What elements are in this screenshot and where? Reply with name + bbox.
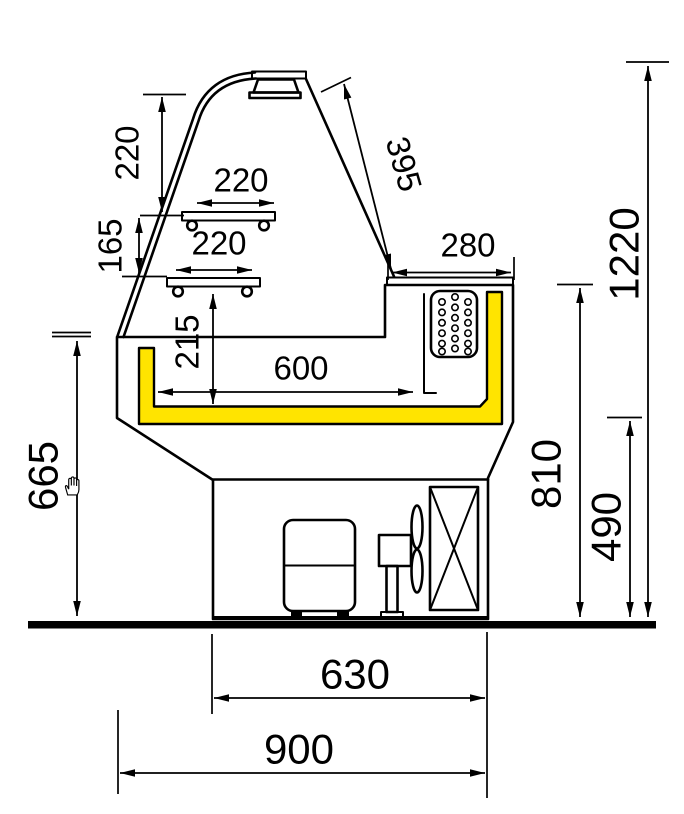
dim-label-810: 810 [523, 439, 570, 509]
dim-label-1220: 1220 [601, 207, 648, 300]
dim-base-height: 490 [583, 418, 643, 618]
dim-well-depth: 215 [169, 294, 214, 404]
dim-label-395: 395 [379, 132, 430, 195]
dim-shelf-lower-width: 220 [176, 225, 252, 271]
condenser-coil [430, 487, 478, 610]
hand-cursor-icon [65, 477, 78, 495]
dim-label-215: 215 [169, 314, 206, 369]
dim-label-900: 900 [264, 726, 334, 773]
shelf-lower [167, 278, 260, 296]
fan-blade [412, 506, 423, 549]
display-counter-cross-section: 220 165 220 220 215 600 280 395 [0, 0, 684, 814]
dim-front-height: 665 [20, 333, 92, 617]
fan-stand-foot [381, 612, 403, 618]
fan-blade [412, 550, 423, 593]
dim-shelf-upper-width: 220 [197, 162, 274, 204]
dim-counter-height: 810 [523, 285, 594, 618]
shelf-bracket [173, 287, 183, 297]
dim-label-630: 630 [320, 651, 390, 698]
compressor-foot [337, 611, 349, 618]
dim-canopy-height: 220 [109, 95, 187, 216]
fan-motor [379, 535, 411, 566]
ventilation-grille [431, 291, 477, 357]
dim-top-shelf-depth: 280 [388, 227, 514, 281]
technical-diagram: 220 165 220 220 215 600 280 395 [0, 0, 684, 814]
dim-label-600: 600 [273, 350, 328, 387]
canopy-panel [252, 72, 306, 79]
compressor-foot [291, 611, 302, 618]
shelf-bracket [242, 287, 252, 297]
ground-line [28, 621, 656, 629]
dim-label-220-upper-shelf: 220 [213, 162, 268, 199]
compressor [284, 520, 355, 618]
lamp-tube [250, 93, 301, 99]
lamp-fixture [250, 80, 301, 99]
fan-stand [387, 566, 398, 612]
front-glass [118, 73, 257, 338]
fan-unit [379, 506, 423, 618]
dim-label-220-lower-shelf: 220 [191, 225, 246, 262]
dim-label-220-canopy: 220 [109, 125, 146, 180]
dim-label-280: 280 [440, 227, 495, 264]
dim-label-165: 165 [92, 218, 129, 273]
grille-holes [439, 294, 471, 355]
dim-label-490: 490 [583, 492, 630, 562]
dim-total-depth: 900 [118, 710, 485, 794]
shelf-bracket [259, 221, 269, 231]
dim-glass-length: 395 [321, 78, 429, 270]
dim-label-665: 665 [20, 441, 67, 511]
